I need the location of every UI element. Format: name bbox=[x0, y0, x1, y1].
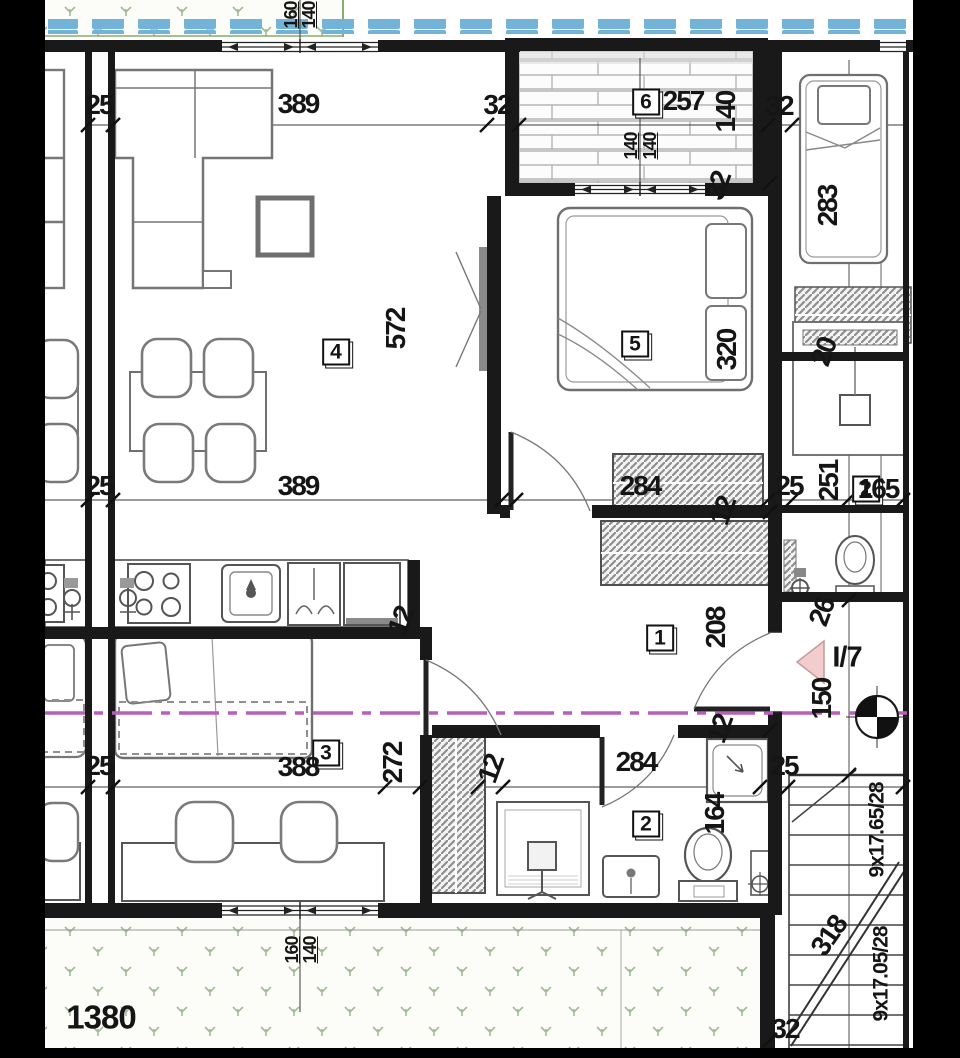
fridge bbox=[344, 563, 400, 625]
window-bottom bbox=[222, 902, 378, 919]
terrace-door bbox=[575, 182, 705, 196]
tile-band bbox=[48, 19, 906, 34]
window-top bbox=[222, 39, 378, 53]
hallway-wardrobe bbox=[601, 521, 775, 585]
window-neighbor bbox=[880, 40, 906, 52]
pillow bbox=[706, 306, 746, 380]
terrace-floor bbox=[519, 51, 753, 183]
entrance-threshold bbox=[768, 632, 782, 712]
floor-plan-canvas: 6453122160140253893225714032140140322835… bbox=[0, 0, 960, 1058]
desk bbox=[122, 843, 384, 901]
kitchen bbox=[64, 560, 408, 627]
garden bbox=[45, 918, 760, 1048]
toilet bbox=[836, 536, 874, 584]
toilet bbox=[685, 828, 731, 882]
pillow bbox=[121, 642, 171, 704]
pillow bbox=[818, 86, 870, 124]
coffee-table bbox=[258, 198, 312, 255]
chair bbox=[176, 802, 233, 862]
floor-plan-drawing bbox=[0, 0, 960, 1058]
pillow bbox=[706, 224, 746, 298]
chair bbox=[281, 802, 337, 862]
stove bbox=[128, 564, 190, 623]
